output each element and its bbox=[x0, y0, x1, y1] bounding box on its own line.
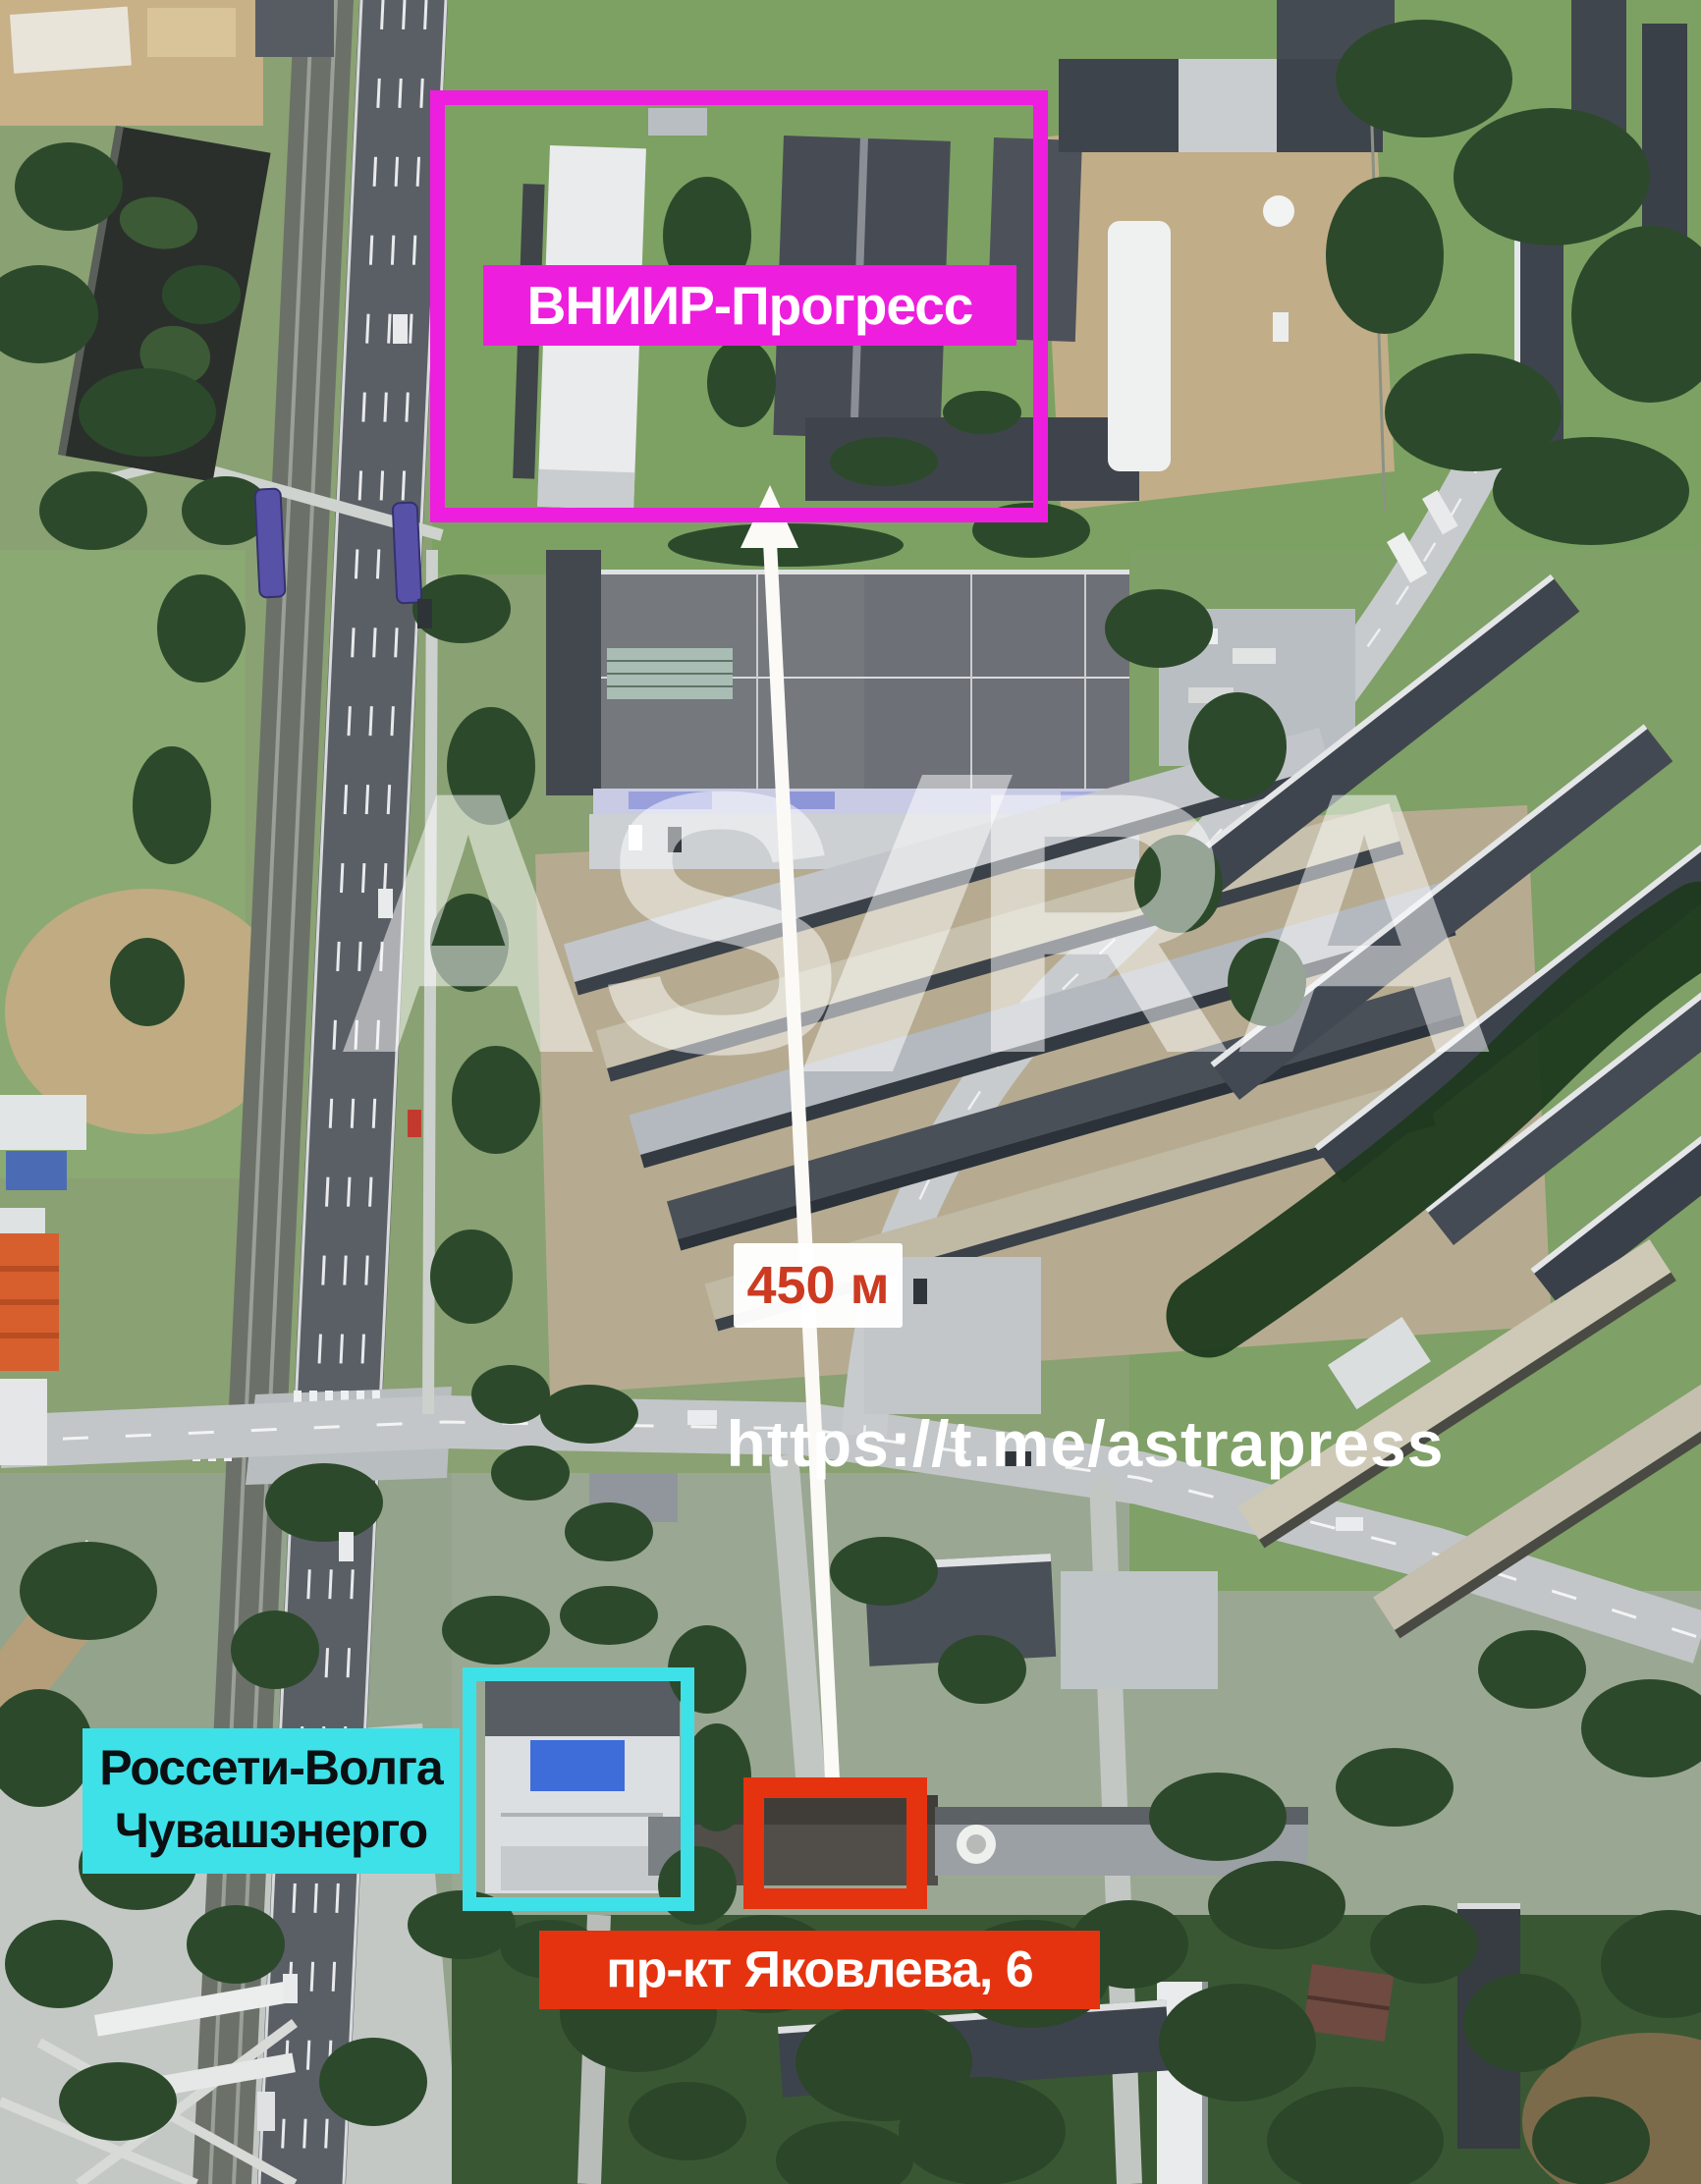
distance-badge: 450 м bbox=[734, 1243, 903, 1328]
substation-highlight-box bbox=[463, 1667, 694, 1911]
telegram-link-watermark: https://t.me/astrapress bbox=[599, 1406, 1571, 1481]
address-highlight-box bbox=[743, 1777, 927, 1909]
substation-label: Россети-Волга Чувашэнерго bbox=[82, 1728, 460, 1874]
address-label: пр-кт Яковлева, 6 bbox=[539, 1931, 1100, 2009]
substation-label-line2: Чувашэнерго bbox=[82, 1799, 460, 1862]
substation-label-line1: Россети-Волга bbox=[82, 1736, 460, 1799]
arrow-shaft bbox=[763, 542, 840, 1779]
screenshot-root: AS RA ВНИИР-Прогресс 450 м https://t.me/… bbox=[0, 0, 1701, 2184]
facility-label: ВНИИР-Прогресс bbox=[483, 265, 1016, 346]
